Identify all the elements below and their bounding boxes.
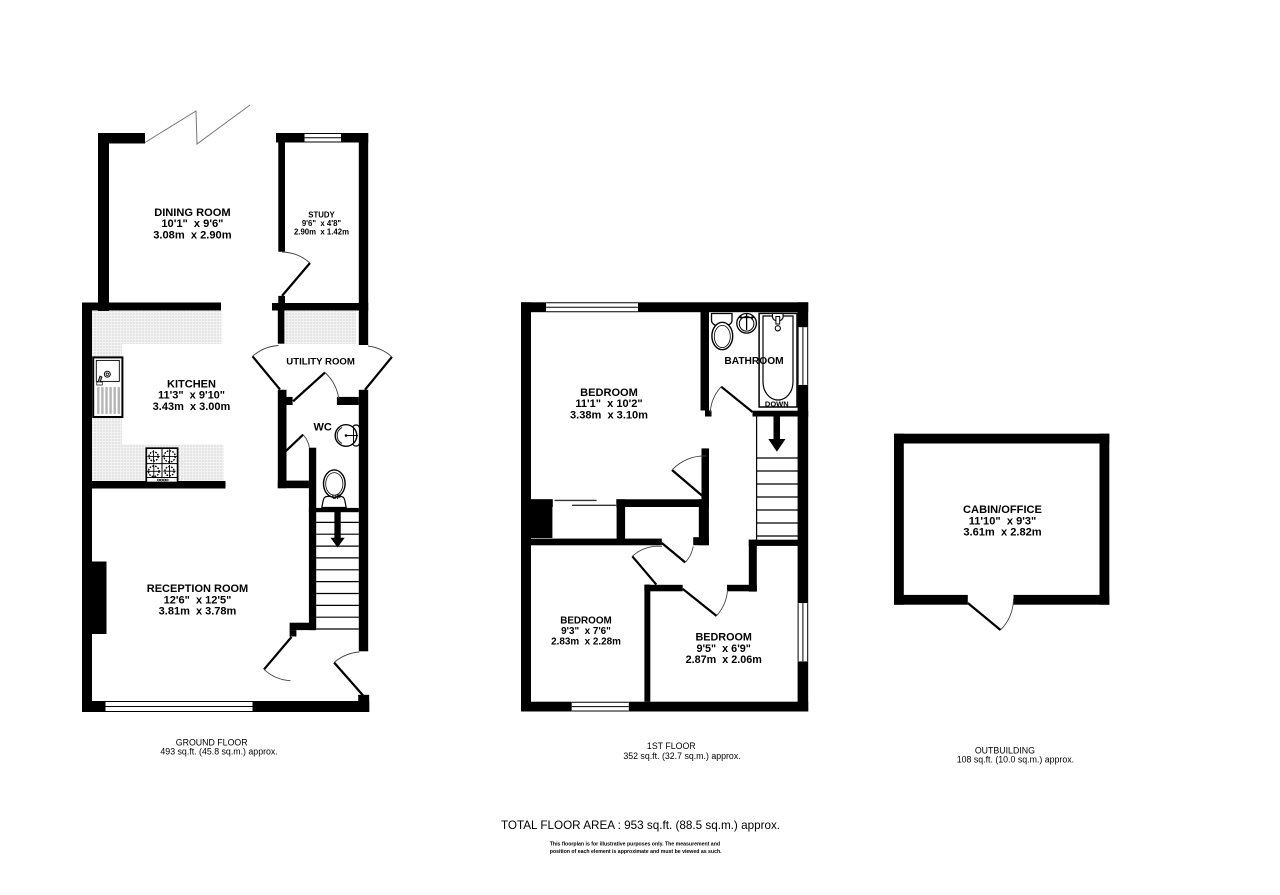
- svg-text:BATHROOM: BATHROOM: [724, 356, 783, 367]
- svg-text:2.87m x 2.06m: 2.87m x 2.06m: [686, 654, 762, 666]
- svg-text:CABIN/OFFICE: CABIN/OFFICE: [963, 504, 1042, 516]
- svg-text:TOTAL FLOOR AREA : 953 sq.ft.: TOTAL FLOOR AREA : 953 sq.ft. (88.5 sq.m…: [501, 819, 780, 832]
- svg-text:3.08m x 2.90m: 3.08m x 2.90m: [153, 229, 231, 241]
- svg-text:KITCHEN: KITCHEN: [167, 378, 216, 390]
- svg-text:DOWN: DOWN: [765, 399, 789, 408]
- svg-text:1ST FLOOR: 1ST FLOOR: [647, 741, 696, 751]
- svg-text:11'10" x 9'3": 11'10" x 9'3": [969, 515, 1037, 527]
- svg-text:WC: WC: [314, 421, 332, 433]
- svg-text:352 sq.ft. (32.7 sq.m.) approx: 352 sq.ft. (32.7 sq.m.) approx.: [623, 751, 740, 761]
- svg-text:This floorplan is for illustra: This floorplan is for illustrative purpo…: [550, 842, 720, 848]
- svg-text:10'1" x 9'6": 10'1" x 9'6": [161, 218, 223, 230]
- svg-text:BEDROOM: BEDROOM: [696, 631, 752, 643]
- svg-text:108 sq.ft. (10.0 sq.m.) approx: 108 sq.ft. (10.0 sq.m.) approx.: [957, 755, 1074, 765]
- svg-text:2.90m x 1.42m: 2.90m x 1.42m: [294, 227, 349, 236]
- svg-text:3.81m x 3.78m: 3.81m x 3.78m: [159, 606, 237, 618]
- svg-text:BEDROOM: BEDROOM: [580, 387, 638, 399]
- svg-text:BEDROOM: BEDROOM: [560, 616, 612, 627]
- svg-text:3.38m x 3.10m: 3.38m x 3.10m: [570, 410, 648, 422]
- svg-text:12'6" x 12'5": 12'6" x 12'5": [164, 594, 232, 606]
- svg-text:3.61m x 2.82m: 3.61m x 2.82m: [963, 527, 1041, 539]
- svg-text:UTILITY ROOM: UTILITY ROOM: [286, 357, 355, 368]
- svg-text:11'3" x 9'10": 11'3" x 9'10": [158, 390, 225, 402]
- svg-text:9'3" x 7'6": 9'3" x 7'6": [561, 626, 611, 637]
- svg-text:RECEPTION ROOM: RECEPTION ROOM: [147, 583, 248, 595]
- svg-text:UP: UP: [332, 494, 342, 501]
- svg-text:493 sq.ft. (45.8 sq.m.) approx: 493 sq.ft. (45.8 sq.m.) approx.: [160, 746, 277, 756]
- svg-text:3.43m x 3.00m: 3.43m x 3.00m: [153, 401, 231, 413]
- svg-text:11'1" x 10'2": 11'1" x 10'2": [575, 398, 642, 410]
- svg-text:2.83m x 2.28m: 2.83m x 2.28m: [551, 636, 621, 647]
- svg-text:DINING ROOM: DINING ROOM: [154, 207, 230, 219]
- svg-text:position of each element is ap: position of each element is approximate …: [550, 849, 722, 855]
- svg-text:9'5" x 6'9": 9'5" x 6'9": [696, 643, 750, 655]
